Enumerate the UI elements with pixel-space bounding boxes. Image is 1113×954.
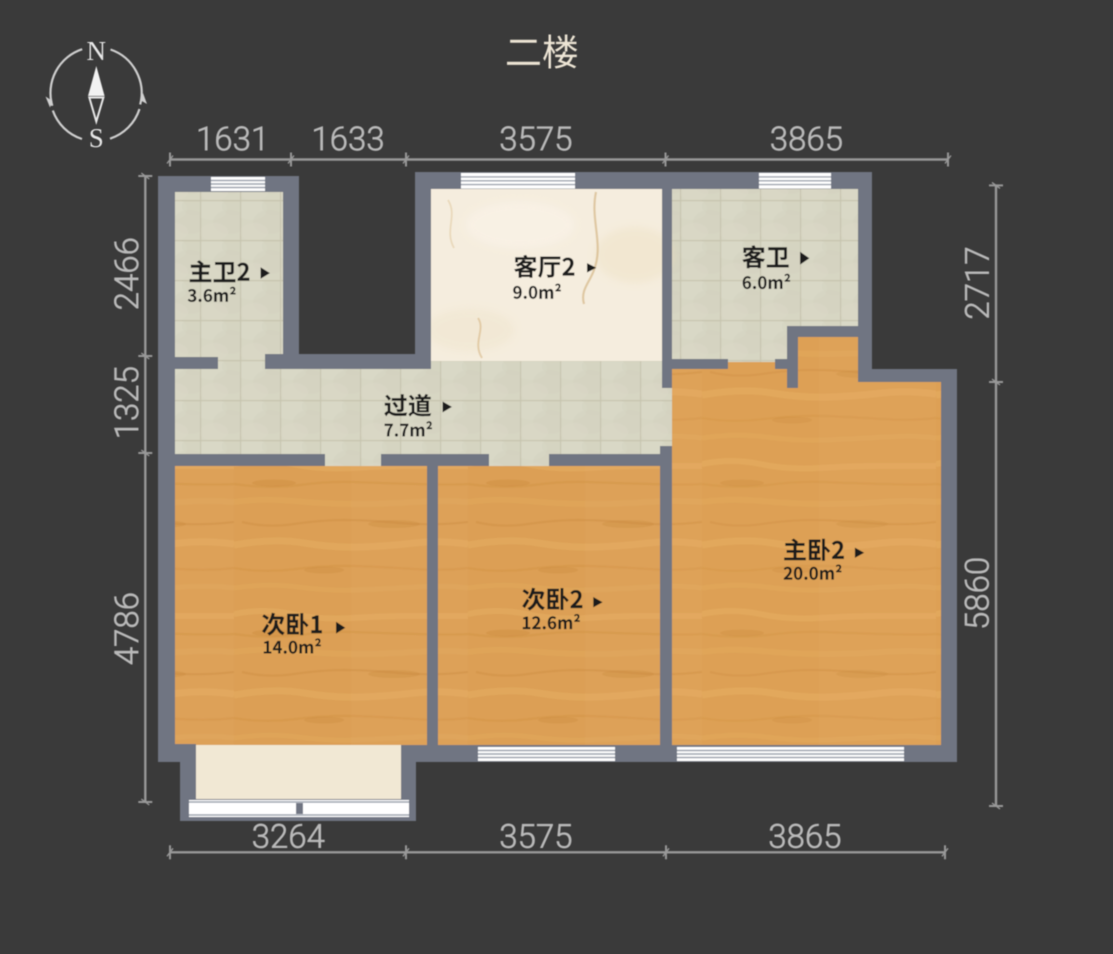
svg-text:N: N [87,36,107,66]
svg-text:S: S [89,123,104,153]
